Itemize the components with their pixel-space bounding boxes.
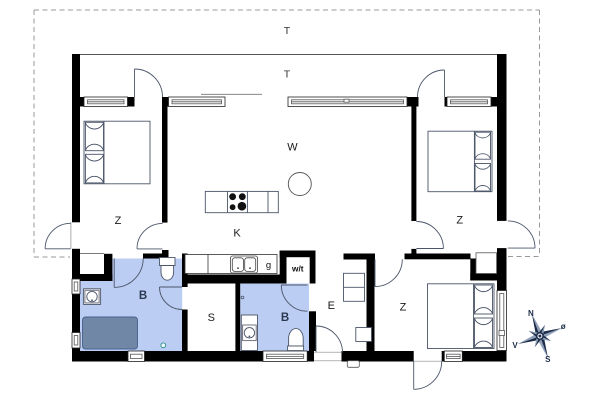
svg-text:K: K [233, 228, 241, 240]
svg-text:S: S [208, 312, 215, 324]
svg-text:S: S [545, 355, 551, 364]
svg-text:T: T [284, 69, 291, 81]
svg-text:g: g [266, 260, 271, 271]
svg-text:w/t: w/t [291, 263, 304, 273]
svg-text:N: N [528, 309, 534, 318]
svg-text:E: E [328, 300, 335, 312]
svg-text:V: V [512, 341, 518, 350]
svg-text:Z: Z [115, 215, 122, 227]
svg-text:Z: Z [456, 214, 463, 226]
svg-text:ø: ø [561, 322, 566, 331]
svg-text:B: B [139, 290, 147, 302]
svg-text:B: B [281, 312, 289, 324]
svg-text:W: W [287, 142, 298, 154]
svg-text:Z: Z [400, 302, 407, 314]
svg-text:T: T [284, 25, 291, 37]
